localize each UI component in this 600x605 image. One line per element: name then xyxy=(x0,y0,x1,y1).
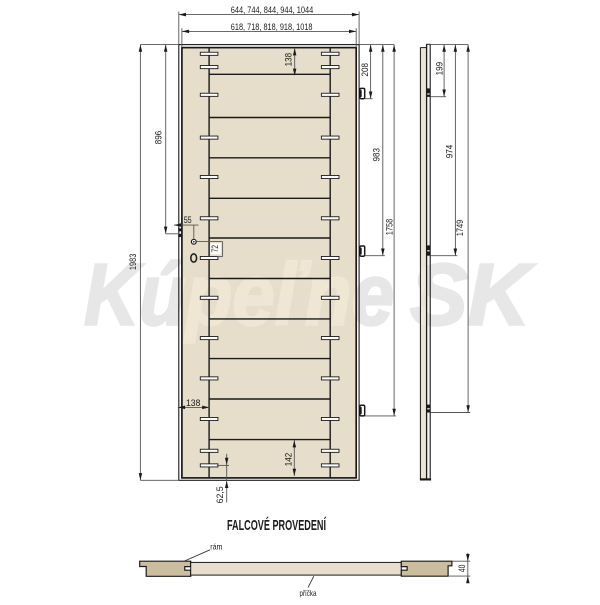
svg-text:SK: SK xyxy=(410,247,536,344)
svg-text:208: 208 xyxy=(360,63,371,77)
svg-text:1749: 1749 xyxy=(455,220,466,237)
svg-text:72: 72 xyxy=(210,245,221,253)
svg-text:138: 138 xyxy=(284,53,295,67)
svg-text:644, 744, 844, 944, 1044: 644, 744, 844, 944, 1044 xyxy=(231,5,313,16)
svg-text:FALCOVÉ PROVEDENÍ: FALCOVÉ PROVEDENÍ xyxy=(227,517,327,534)
svg-text:62,5: 62,5 xyxy=(215,486,226,503)
svg-text:1758: 1758 xyxy=(385,219,396,236)
svg-text:rám: rám xyxy=(210,542,222,552)
svg-text:896: 896 xyxy=(154,131,165,145)
svg-text:příčka: příčka xyxy=(300,588,317,598)
svg-text:138: 138 xyxy=(186,398,200,409)
svg-text:40: 40 xyxy=(457,565,468,573)
svg-text:983: 983 xyxy=(371,148,382,162)
svg-text:1983: 1983 xyxy=(128,254,139,271)
svg-text:142: 142 xyxy=(284,453,295,467)
svg-text:618, 718, 818, 918, 1018: 618, 718, 818, 918, 1018 xyxy=(231,22,313,33)
svg-text:974: 974 xyxy=(445,145,456,159)
svg-text:199: 199 xyxy=(434,62,445,76)
svg-text:55: 55 xyxy=(184,215,192,226)
